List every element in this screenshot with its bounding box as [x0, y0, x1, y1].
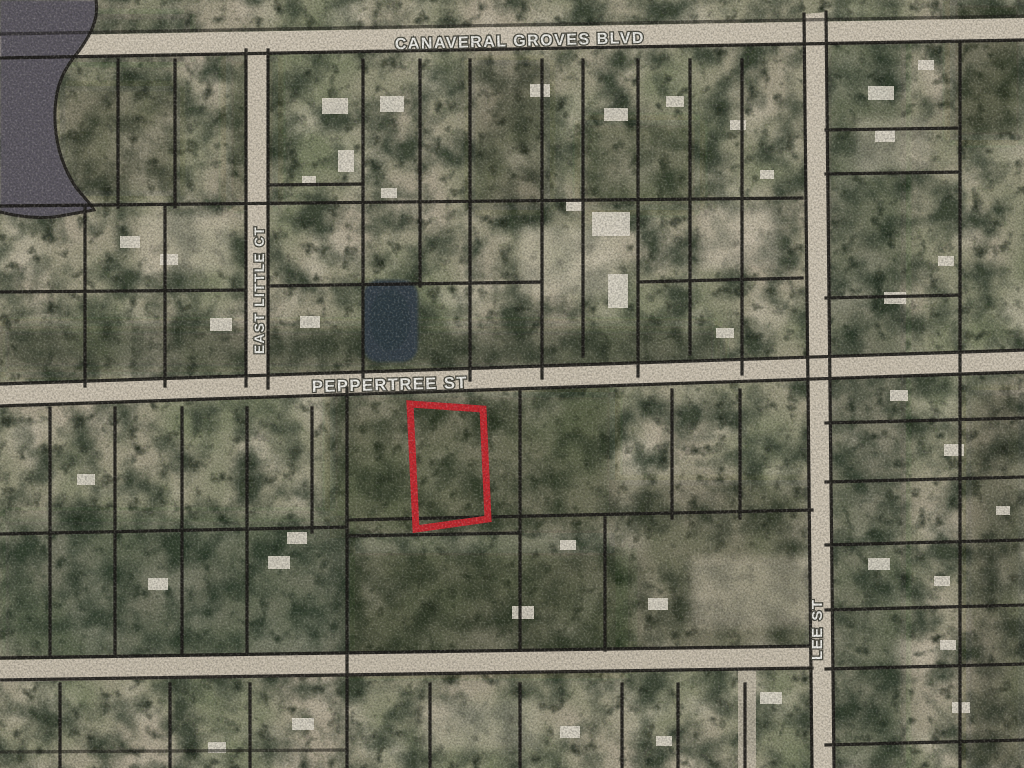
- scan-grain-overlay: [0, 0, 1024, 768]
- map-canvas: CANAVERAL GROVES BLVD PEPPERTREE ST EAST…: [0, 0, 1024, 768]
- aerial-parcel-map: CANAVERAL GROVES BLVD PEPPERTREE ST EAST…: [0, 0, 1024, 768]
